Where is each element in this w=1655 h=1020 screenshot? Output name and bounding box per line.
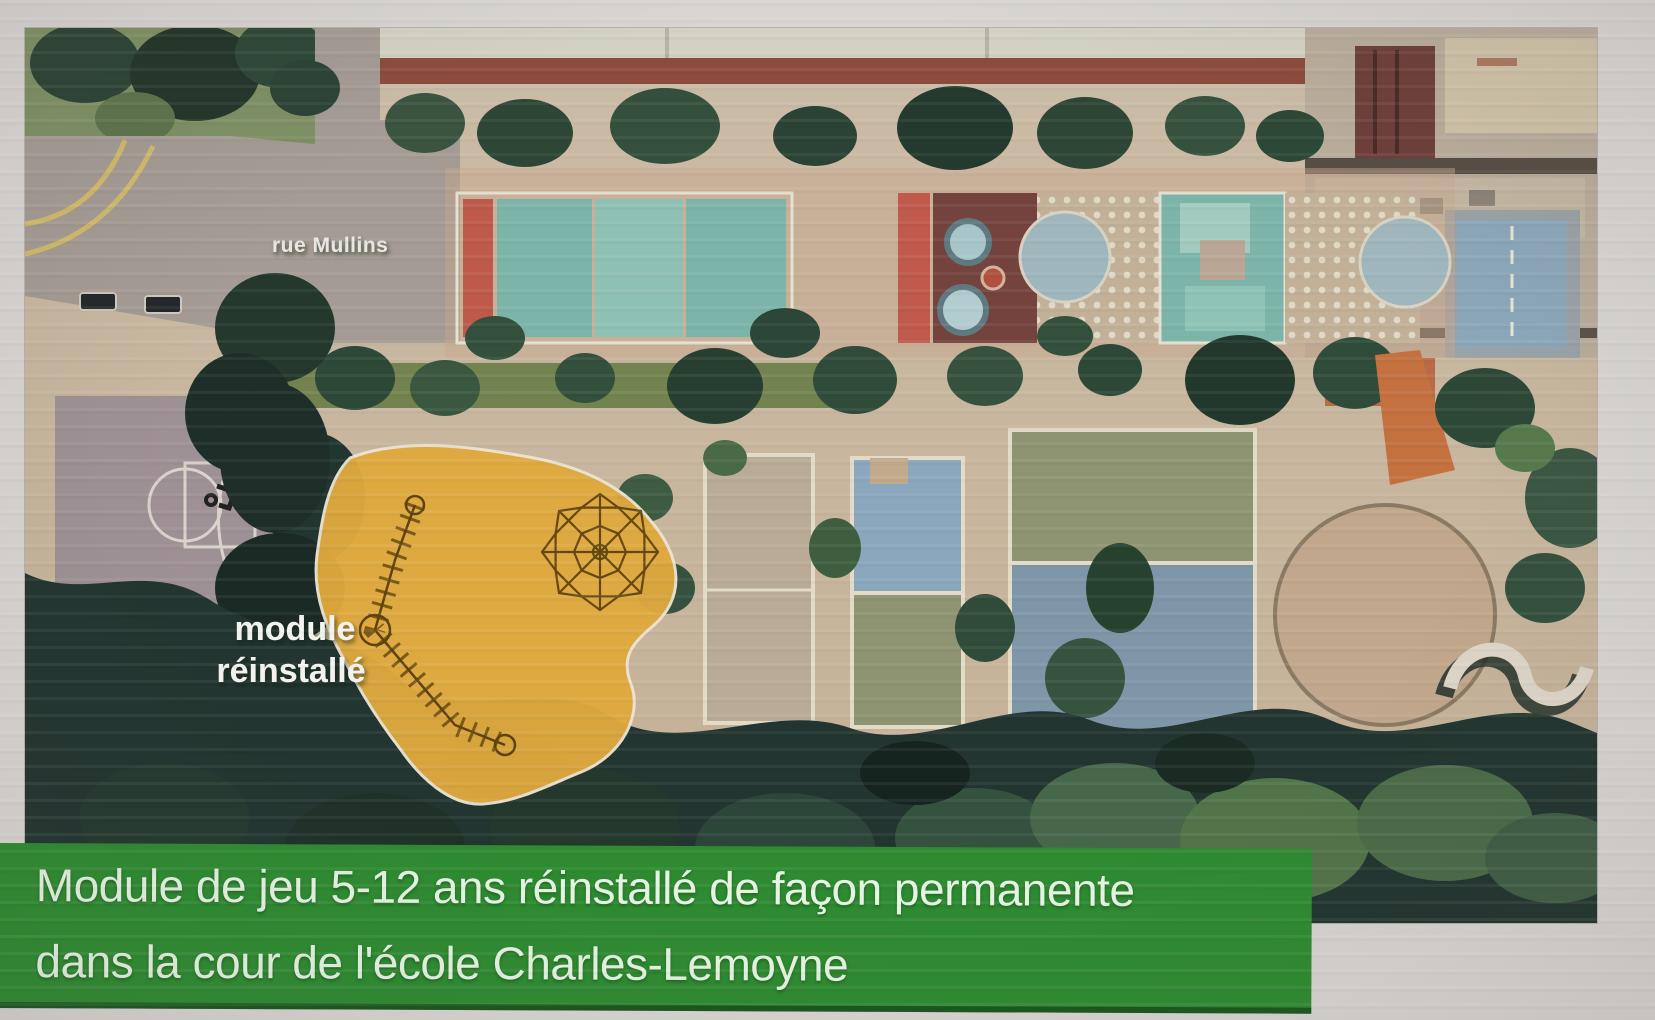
street-label: rue Mullins: [272, 234, 388, 257]
caption-banner: Module de jeu 5-12 ans réinstallé de faç…: [0, 843, 1312, 1014]
module-annotation-line2: réinstallé: [216, 652, 365, 690]
module-annotation-line1: module: [235, 610, 356, 648]
caption-line-1: Module de jeu 5-12 ans réinstallé de faç…: [36, 847, 1312, 929]
painted-courts-row: [445, 168, 1455, 358]
parked-car: [145, 296, 181, 313]
aerial-photo: rue Mullins module réinstallé: [25, 28, 1597, 923]
parked-car: [80, 293, 116, 310]
caption-line-2: dans la cour de l'école Charles-Lemoyne: [35, 923, 1311, 1005]
aerial-scene: rue Mullins module réinstallé: [25, 28, 1597, 923]
climbing-dome-drawing: [542, 494, 658, 610]
